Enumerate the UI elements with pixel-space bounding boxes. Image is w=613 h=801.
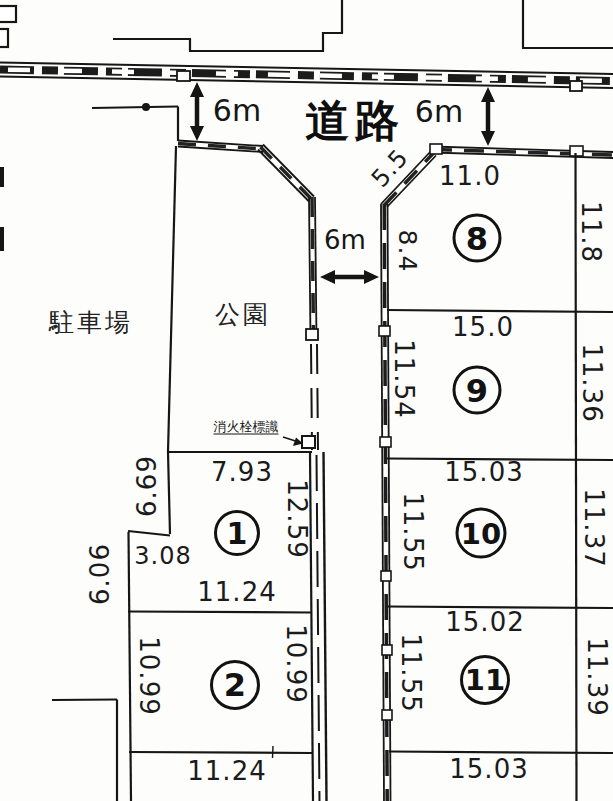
road-width-left-label: 6m: [213, 96, 261, 126]
dim-plot2-left: 10.99: [136, 636, 162, 715]
dim-plot2-bottom: 11.24: [187, 758, 266, 784]
building-outlines: [113, 0, 613, 51]
dim-plot9-right: 11.36: [579, 343, 605, 422]
park-west-boundary: [168, 146, 176, 452]
width-arrow-ns-road: [320, 270, 379, 284]
dim-plot1-bottom: 11.24: [197, 579, 276, 605]
parking-label: 駐車場: [49, 310, 133, 335]
hydrant-sign-label: 消火栓標識: [214, 420, 279, 435]
dim-plot1-top: 7.93: [211, 459, 273, 485]
park-label: 公園: [215, 302, 271, 327]
dim-plot10-right: 11.37: [581, 488, 607, 567]
dim-plot11-bottom: 15.03: [449, 756, 528, 782]
plot-1-number: 1: [214, 510, 260, 556]
road-label: 道路: [305, 99, 405, 143]
park-north-road-edge: [178, 141, 314, 202]
plot-9-number: 9: [453, 366, 502, 415]
top-road-south-edge: [430, 144, 613, 158]
dim-plot8-top: 11.0: [439, 163, 501, 189]
dim-plot8-right: 11.8: [578, 201, 604, 263]
width-arrow-left: [190, 82, 204, 141]
dim-plot1-right: 12.59: [284, 479, 310, 558]
dim-plot9-top: 15.0: [452, 314, 514, 340]
plot-2-number: 2: [210, 660, 260, 710]
plot-8-number: 8: [453, 214, 502, 263]
fire-hydrant-marker: [283, 436, 315, 448]
dim-plot1-left-upper: 6.69: [134, 455, 160, 517]
dim-plot11-top: 15.02: [445, 609, 524, 635]
road-hatch-band: [0, 63, 613, 92]
road-width-ns-label: 6m: [324, 227, 366, 253]
road-width-right-label: 6m: [415, 97, 463, 127]
dim-plot10-top: 15.03: [444, 459, 523, 485]
plot-10-number: 10: [456, 508, 507, 559]
plot-11-number: 11: [460, 655, 510, 705]
dim-plot10-left: 11.55: [400, 492, 426, 571]
dim-plot1-left-lower: 3.08: [134, 544, 191, 568]
edge-fragments: [0, 6, 16, 251]
subdivision-plan: 道路 6m 6m 6m 駐車場 公園 消火栓標識 1 2 8 9 10 11 1…: [0, 0, 613, 801]
dim-plot11-left: 11.55: [398, 633, 424, 712]
dim-plot2-right: 10.99: [283, 624, 309, 703]
width-arrow-right: [481, 87, 495, 146]
dim-plot9-left: 11.54: [391, 339, 417, 418]
dim-plot8-left: 8.4: [395, 230, 420, 273]
dim-west-boundary: 6.06: [87, 543, 113, 605]
dim-plot11-right: 11.39: [584, 637, 610, 716]
